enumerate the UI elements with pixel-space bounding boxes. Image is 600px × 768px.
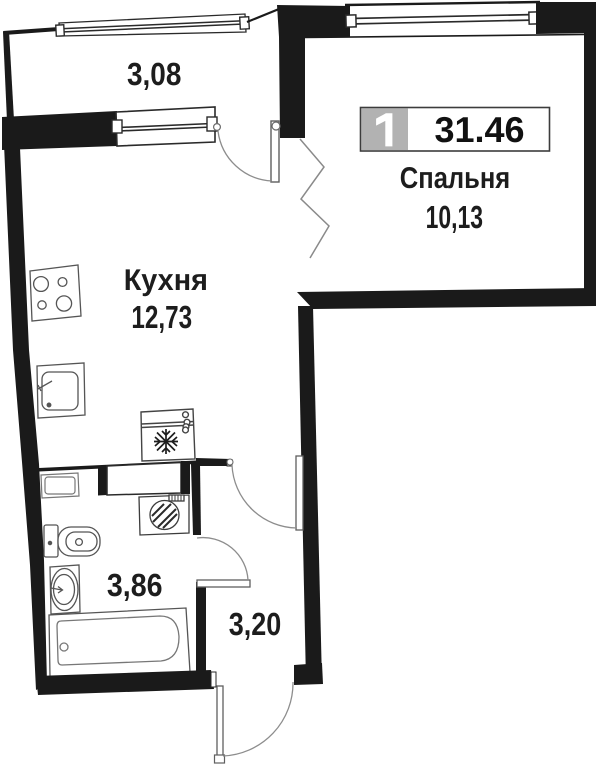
svg-text:31.46: 31.46: [434, 109, 524, 150]
svg-text:10,13: 10,13: [426, 199, 483, 235]
svg-text:3,86: 3,86: [107, 567, 163, 603]
svg-text:3,08: 3,08: [127, 56, 181, 92]
svg-text:3,20: 3,20: [229, 606, 282, 642]
svg-text:Кухня: Кухня: [124, 264, 208, 297]
svg-text:Спальня: Спальня: [400, 162, 510, 195]
svg-text:12,73: 12,73: [131, 299, 192, 335]
